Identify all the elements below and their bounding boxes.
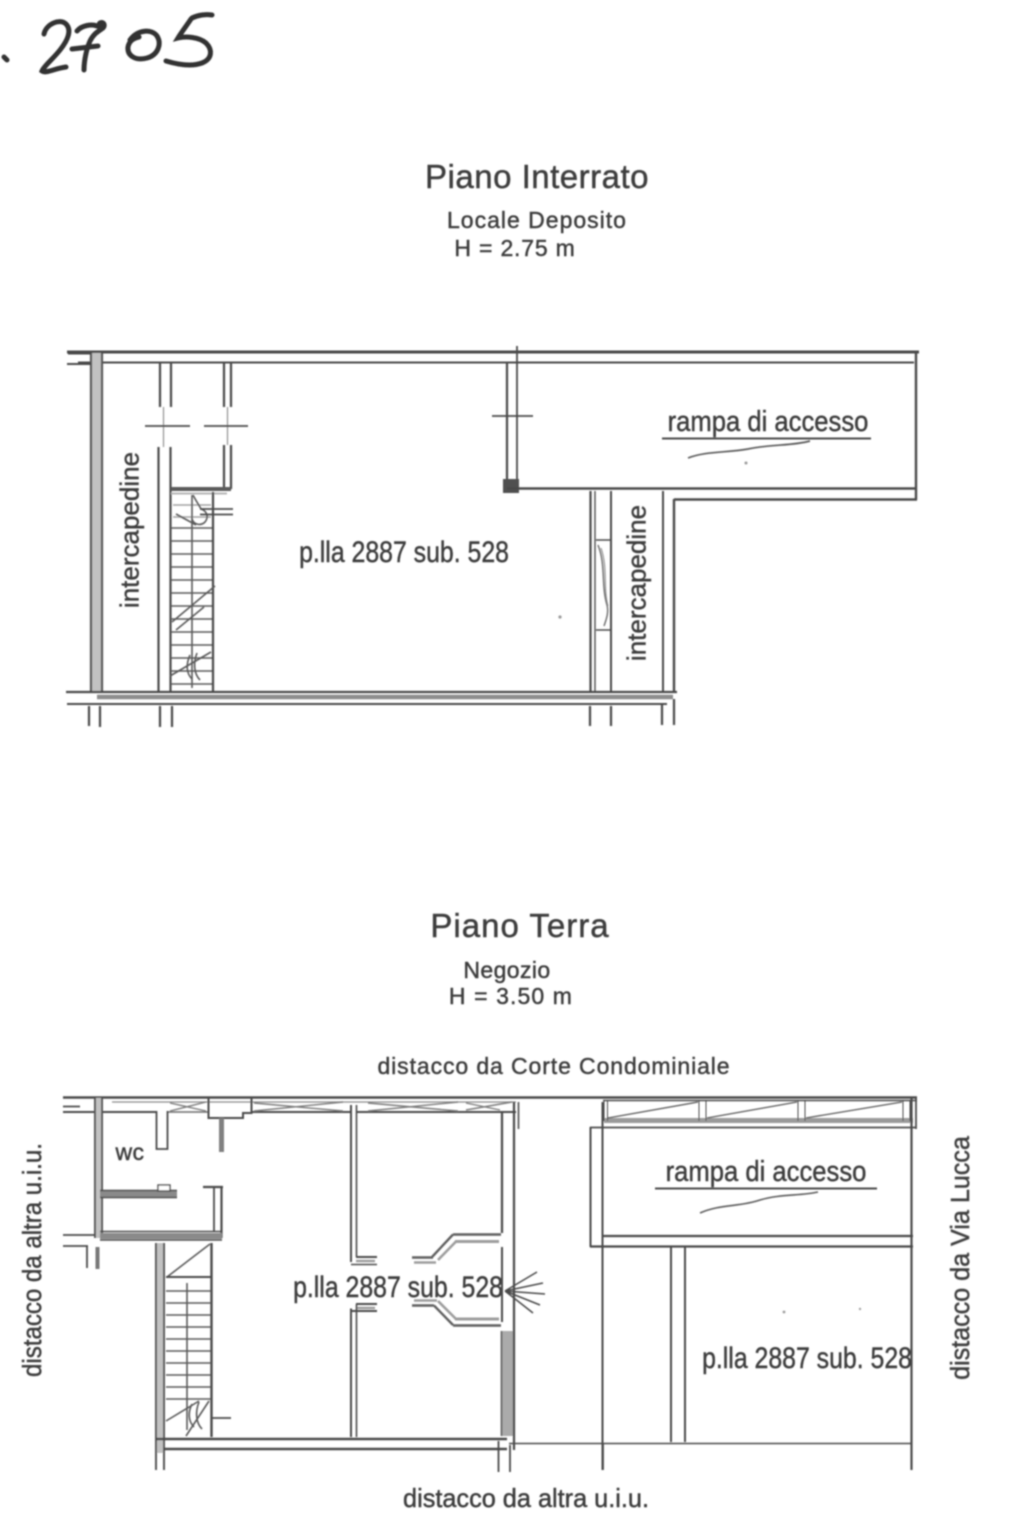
svg-text:p.lla 2887 sub. 528: p.lla 2887 sub. 528: [293, 1270, 503, 1304]
svg-text:p.lla 2887 sub. 528: p.lla 2887 sub. 528: [299, 535, 509, 569]
svg-text:rampa di accesso: rampa di accesso: [666, 1155, 867, 1188]
svg-text:Negozio: Negozio: [463, 957, 550, 983]
svg-text:intercapedine: intercapedine: [115, 452, 145, 608]
svg-text:rampa di accesso: rampa di accesso: [668, 405, 869, 438]
svg-text:H = 2.75 m: H = 2.75 m: [454, 235, 575, 261]
svg-text:distacco da Via Lucca: distacco da Via Lucca: [947, 1135, 975, 1380]
svg-text:distacco da altra u.i.u.: distacco da altra u.i.u.: [18, 1143, 47, 1377]
svg-text:intercapedine: intercapedine: [622, 505, 652, 661]
svg-text:p.lla 2887 sub. 528: p.lla 2887 sub. 528: [702, 1341, 912, 1375]
svg-text:Piano Terra: Piano Terra: [430, 907, 609, 944]
svg-text:wc: wc: [114, 1139, 144, 1165]
svg-text:distacco da altra u.i.u.: distacco da altra u.i.u.: [403, 1485, 649, 1513]
svg-text:Locale Deposito: Locale Deposito: [447, 207, 627, 233]
svg-text:distacco da Corte Condominiale: distacco da Corte Condominiale: [377, 1053, 730, 1079]
svg-text:H = 3.50 m: H = 3.50 m: [449, 983, 573, 1009]
svg-text:Piano Interrato: Piano Interrato: [425, 158, 649, 195]
